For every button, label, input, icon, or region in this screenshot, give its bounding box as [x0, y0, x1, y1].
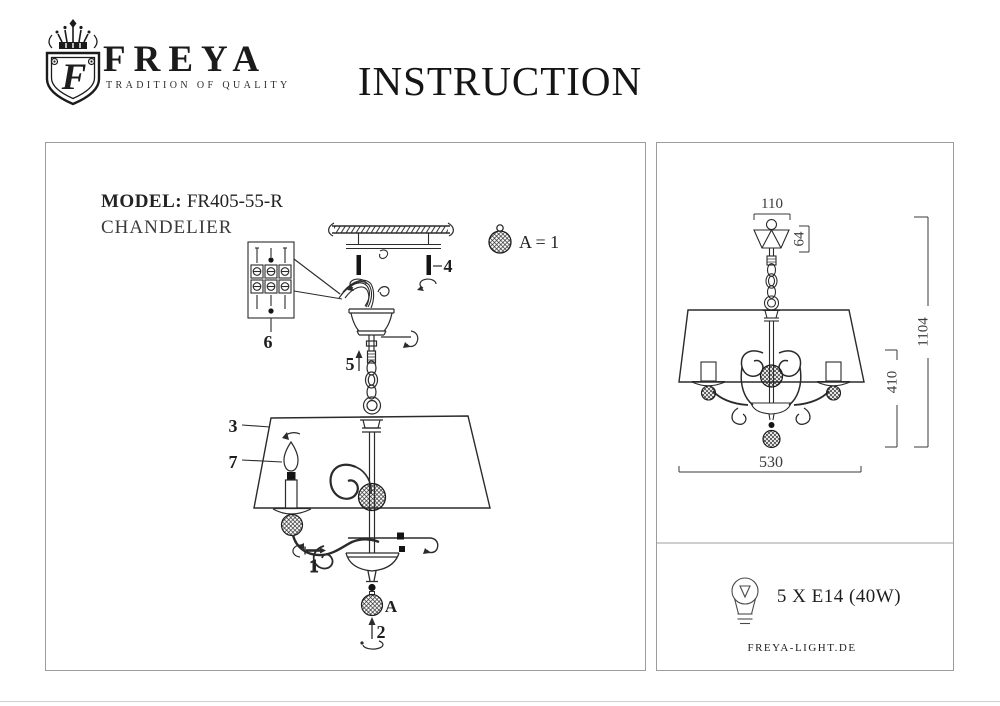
finial-bead [368, 584, 375, 591]
part-label-1: 1 [310, 556, 319, 576]
dimension-diagram: 110 64 [657, 143, 953, 670]
dim-canopy-width: 110 [754, 196, 790, 220]
part-label-6: 6 [264, 332, 273, 352]
mini-bottom-crystal [763, 431, 780, 448]
hub [348, 533, 438, 555]
freya-crest-icon: F [38, 14, 108, 118]
ceiling [329, 223, 454, 258]
svg-text:110: 110 [761, 196, 783, 212]
mini-bead [769, 422, 775, 428]
dim-canopy-drop: 64 [791, 226, 809, 252]
mini-canopy [754, 220, 789, 249]
brand-logo: F [38, 14, 108, 118]
part-label-4: 4 [444, 256, 453, 276]
part-label-3: 3 [229, 416, 238, 436]
mini-left-ball [702, 386, 716, 400]
brand-tagline: TRADITION OF QUALITY [106, 80, 291, 91]
legend-text: A = 1 [519, 232, 559, 252]
part-label-2: 2 [377, 622, 386, 642]
chain [360, 351, 383, 432]
canopy [349, 309, 418, 351]
model-label: MODEL: [101, 191, 182, 212]
label-3: 3 [229, 416, 271, 436]
model-value: FR405-55-R [187, 191, 283, 212]
crystal-marker: A [385, 597, 398, 616]
wires [339, 280, 389, 308]
bottom-dish [346, 553, 399, 582]
website: FREYA-LIGHT.DE [747, 642, 856, 654]
column-crystal-ball [359, 484, 386, 511]
bulb-icon [732, 578, 758, 624]
mounting-screws: 4 [347, 255, 453, 291]
dim-total-height: 1104 [914, 217, 931, 447]
product-type: CHANDELIER [101, 215, 283, 241]
model-block: MODEL: FR405-55-R CHANDELIER [101, 189, 283, 241]
part-label-5: 5 [346, 354, 355, 374]
part-label-7: 7 [229, 452, 238, 472]
brand-name: FREYA [103, 38, 267, 81]
mini-column-ball [761, 365, 783, 387]
step-2-arrow: 2 [360, 617, 385, 649]
dim-body-height: 410 [884, 350, 900, 447]
dim-diameter: 530 [679, 454, 861, 472]
brand-monogram: F [61, 57, 87, 98]
svg-text:1104: 1104 [915, 317, 931, 347]
svg-text:410: 410 [884, 371, 900, 394]
dimensions-panel: 110 64 [656, 142, 954, 671]
candle-crystal-ball [282, 515, 303, 536]
page-bottom-rule [0, 701, 1000, 702]
mini-right-ball [827, 386, 841, 400]
step-5-arrow: 5 [346, 350, 363, 374]
svg-text:64: 64 [791, 231, 807, 247]
legend: A = 1 [489, 225, 559, 253]
svg-text:530: 530 [759, 454, 783, 471]
bottom-crystal-ball [362, 595, 383, 616]
candle-assembly [273, 432, 311, 514]
bulb-spec: 5 X E14 (40W) [777, 586, 901, 607]
label-7: 7 [229, 452, 283, 472]
assembly-panel: MODEL: FR405-55-R CHANDELIER [45, 142, 646, 671]
terminal-block [248, 242, 342, 332]
page-title: INSTRUCTION [340, 57, 660, 105]
